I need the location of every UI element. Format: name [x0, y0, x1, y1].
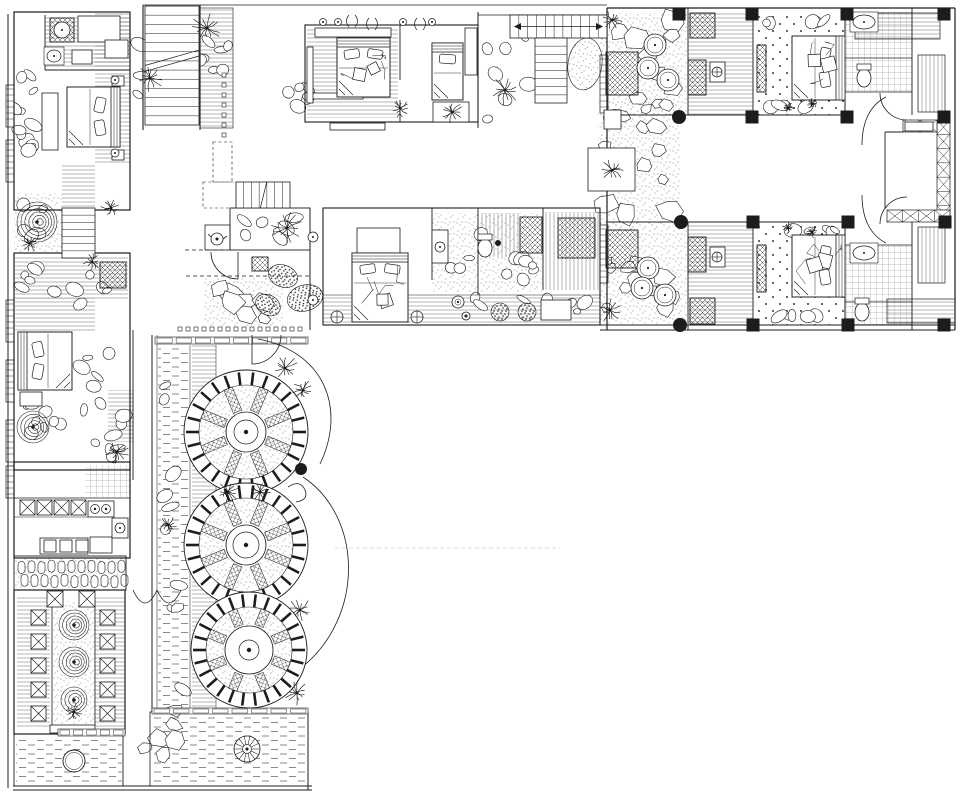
bed-topleft [67, 87, 120, 147]
closet-bench [78, 16, 120, 42]
deck-post-2 [111, 149, 119, 157]
balconyB-right [918, 227, 945, 283]
kitchen-cabinet [71, 500, 86, 515]
step-ring-A1 [644, 34, 666, 56]
colonnade-table [31, 610, 46, 625]
m1-cabinet [315, 28, 391, 37]
ceiling-glyph [335, 19, 342, 26]
balconyA-right [918, 55, 945, 112]
column [938, 111, 951, 124]
washer-drum [54, 22, 70, 38]
bathB-toilet [855, 298, 869, 321]
tall-wardrobe [42, 93, 58, 150]
colonnade-table [100, 706, 115, 721]
round-patio-3 [191, 592, 307, 708]
stove [88, 501, 114, 517]
wall-post-2 [308, 295, 318, 305]
bathA-sink [850, 12, 878, 32]
planter-bush-1 [491, 303, 509, 321]
island-square [44, 540, 56, 552]
colonnade-table [31, 658, 46, 673]
entryB-bench [606, 230, 638, 268]
step-ring-A2 [637, 57, 659, 79]
column [842, 216, 855, 229]
deck-stool-2 [462, 312, 470, 320]
guestB-bench [757, 245, 766, 292]
master-mat-a [520, 217, 542, 253]
step-ring-B2 [631, 277, 653, 299]
m1-porch [330, 123, 385, 130]
terrace-sill [152, 708, 308, 714]
top-stair-run [510, 15, 607, 38]
canopy-post-1 [331, 311, 343, 323]
water-sill [58, 729, 125, 736]
tea-firepit [252, 257, 268, 271]
tableB-post [712, 252, 722, 262]
entryA-bench [606, 52, 638, 95]
colonnade-table [31, 682, 46, 697]
m2-wardrobe [465, 28, 477, 75]
bathtub [72, 50, 92, 64]
l2-mat [100, 262, 126, 288]
island-square [60, 540, 72, 552]
round-column [674, 215, 688, 229]
boardwalk-planter [541, 300, 571, 320]
bathB-sink [850, 243, 878, 263]
west-window-3 [6, 300, 14, 342]
tatamiA-box [690, 13, 715, 38]
wardrobe-topleft [105, 40, 128, 58]
guestA-bench [757, 45, 766, 92]
tableA-post [712, 67, 722, 77]
kitchen-cabinet [20, 500, 35, 515]
master-toilet [478, 234, 492, 257]
tatamiB-mat [688, 237, 706, 272]
colonnade-table [100, 634, 115, 649]
column [841, 111, 854, 124]
colonnade-column [79, 591, 95, 607]
bed-m1 [337, 38, 390, 97]
column [747, 319, 760, 332]
west-window-6 [6, 466, 14, 498]
column [673, 8, 686, 21]
step-ring-A3 [657, 69, 679, 91]
tatamiB-box [690, 298, 715, 324]
bed-m2 [432, 43, 463, 100]
west-window-2 [6, 140, 14, 182]
kitchen-cabinet [54, 500, 69, 515]
column [746, 111, 759, 124]
round-column [673, 318, 687, 332]
column [746, 8, 759, 21]
bed-l2 [18, 332, 72, 390]
terrace-round-tree [234, 736, 260, 762]
west-window-4 [6, 360, 14, 402]
wall-post-1 [308, 232, 318, 242]
column [841, 8, 854, 21]
column [842, 319, 855, 332]
column [938, 319, 951, 332]
planter-bush-2 [518, 303, 536, 321]
west-window-5 [6, 420, 14, 462]
round-patio-1 [184, 370, 308, 494]
master-mat-b [558, 218, 595, 258]
bed-guestA [792, 36, 845, 100]
closet-sink [44, 47, 64, 65]
bed-guestB [792, 235, 845, 297]
ceiling-glyph [400, 19, 407, 26]
dark-dot-bath [495, 240, 501, 246]
dark-dot-garden [295, 463, 307, 475]
kitchen-cabinet [37, 500, 52, 515]
kitchen-sink [115, 523, 125, 533]
west-window-1 [6, 85, 14, 127]
master-basin [435, 242, 445, 252]
stair-shaft-rail-east [937, 120, 950, 220]
column [938, 8, 951, 21]
fridge [90, 537, 112, 553]
colonnade-table [31, 706, 46, 721]
l2-nightstand [20, 392, 42, 406]
round-column [672, 110, 686, 124]
entry-stair [236, 182, 290, 208]
colonnade-table [31, 634, 46, 649]
deck-stool-1 [452, 296, 464, 308]
island-square [76, 540, 88, 552]
step-ring-B3 [654, 284, 676, 306]
ceiling-glyph [320, 19, 327, 26]
colonnade-column [47, 591, 63, 607]
master-head-cabinet [357, 228, 400, 253]
column [747, 216, 760, 229]
colonnade-pond [63, 750, 85, 772]
courtyard-sill [155, 337, 308, 344]
deck-post-1 [111, 76, 119, 84]
tatamiA-mat [688, 60, 706, 95]
colonnade-table [100, 658, 115, 673]
stonebox-border [604, 110, 621, 129]
m1-radiator [307, 47, 313, 103]
colonnade-table [100, 682, 115, 697]
paper-background [0, 0, 960, 810]
hall-step [905, 122, 933, 131]
bathA-toilet [857, 64, 871, 87]
step-ring-B1 [637, 257, 659, 279]
bed-master [352, 253, 408, 322]
column [939, 216, 952, 229]
top-stair-vert [535, 38, 567, 103]
floor-plan-canvas [0, 0, 960, 810]
ceiling-glyph [429, 19, 436, 26]
colonnade-table [100, 610, 115, 625]
corridor-stair [145, 6, 199, 125]
floor-plan-page [0, 0, 960, 810]
left-stair [62, 208, 95, 258]
round-patio-2 [184, 483, 308, 607]
canopy-post-2 [411, 311, 423, 323]
